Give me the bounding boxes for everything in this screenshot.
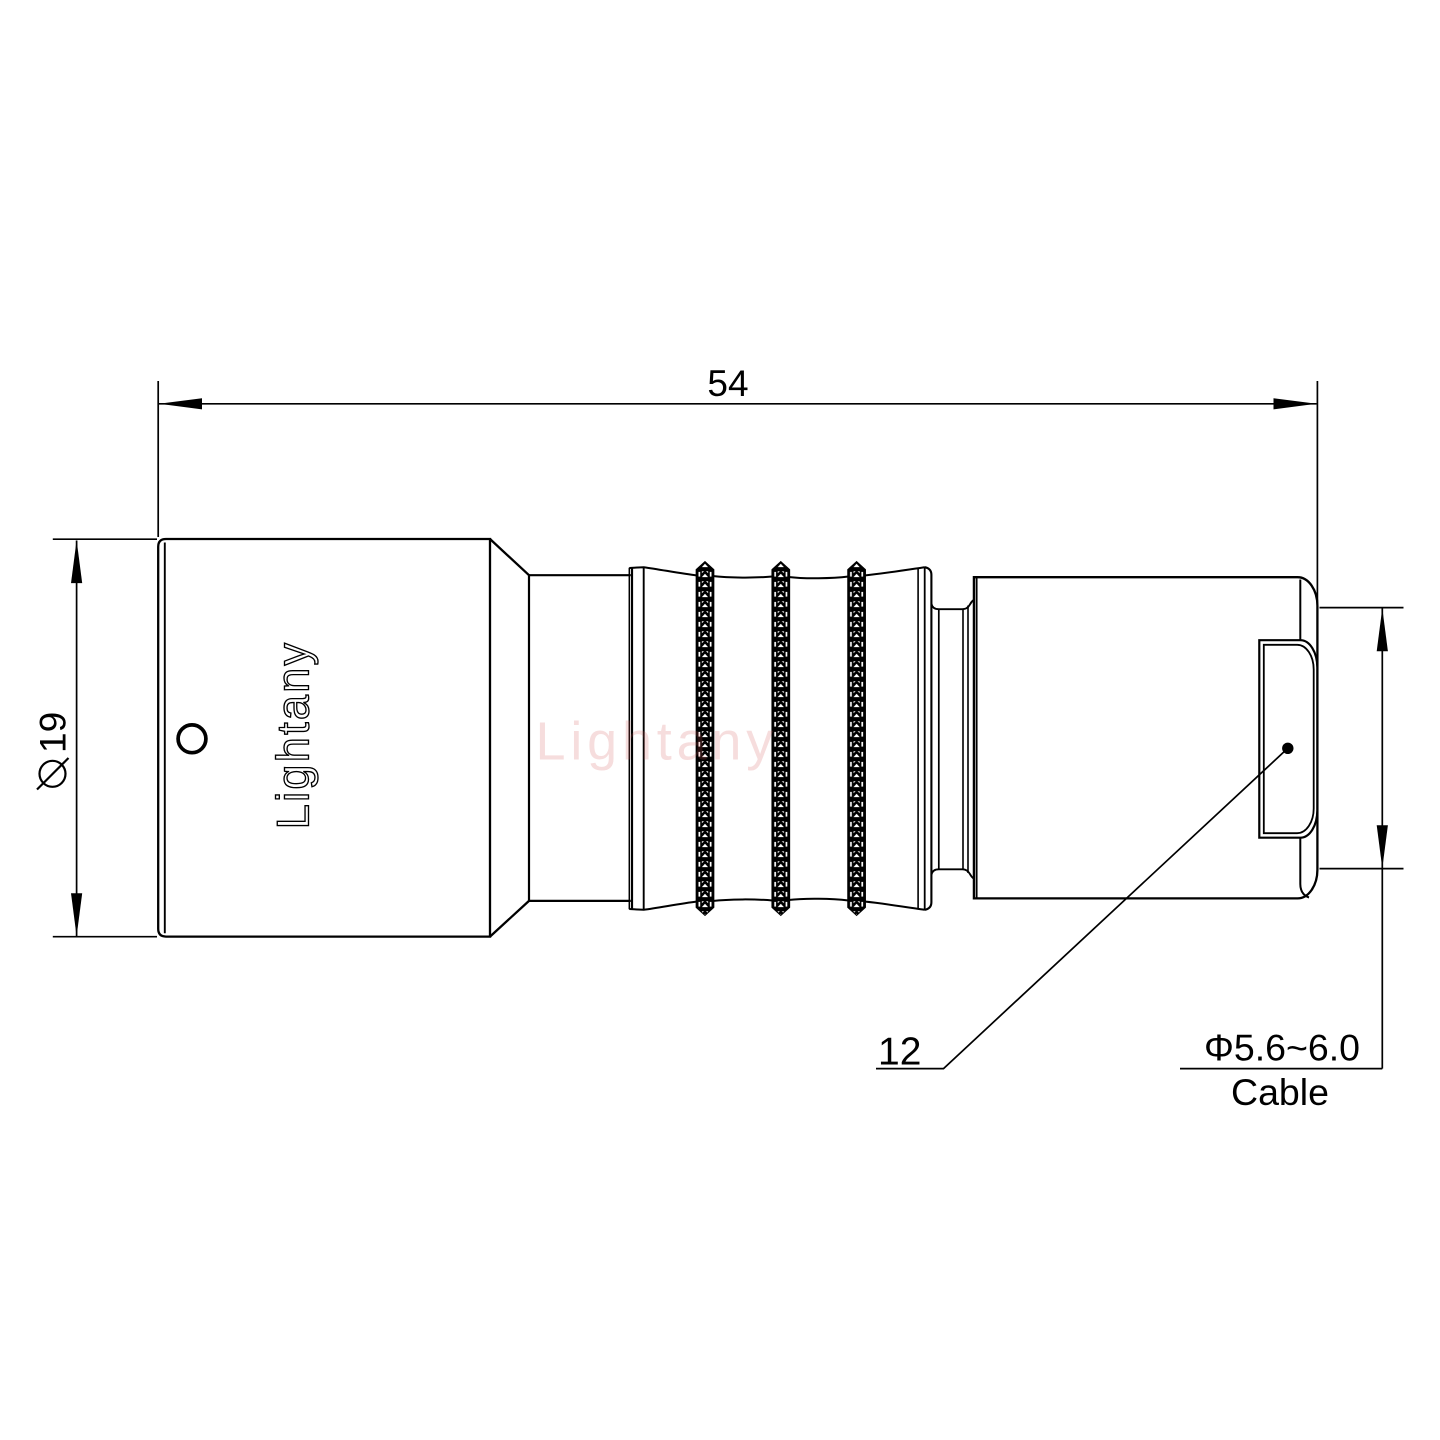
svg-text:19: 19 [33,712,74,753]
svg-text:Lightany: Lightany [268,641,319,830]
svg-text:Lightany: Lightany [536,712,779,772]
svg-text:Φ5.6~6.0: Φ5.6~6.0 [1204,1027,1360,1069]
svg-text:54: 54 [707,363,748,404]
svg-text:12: 12 [878,1031,921,1074]
svg-text:Cable: Cable [1231,1071,1329,1113]
